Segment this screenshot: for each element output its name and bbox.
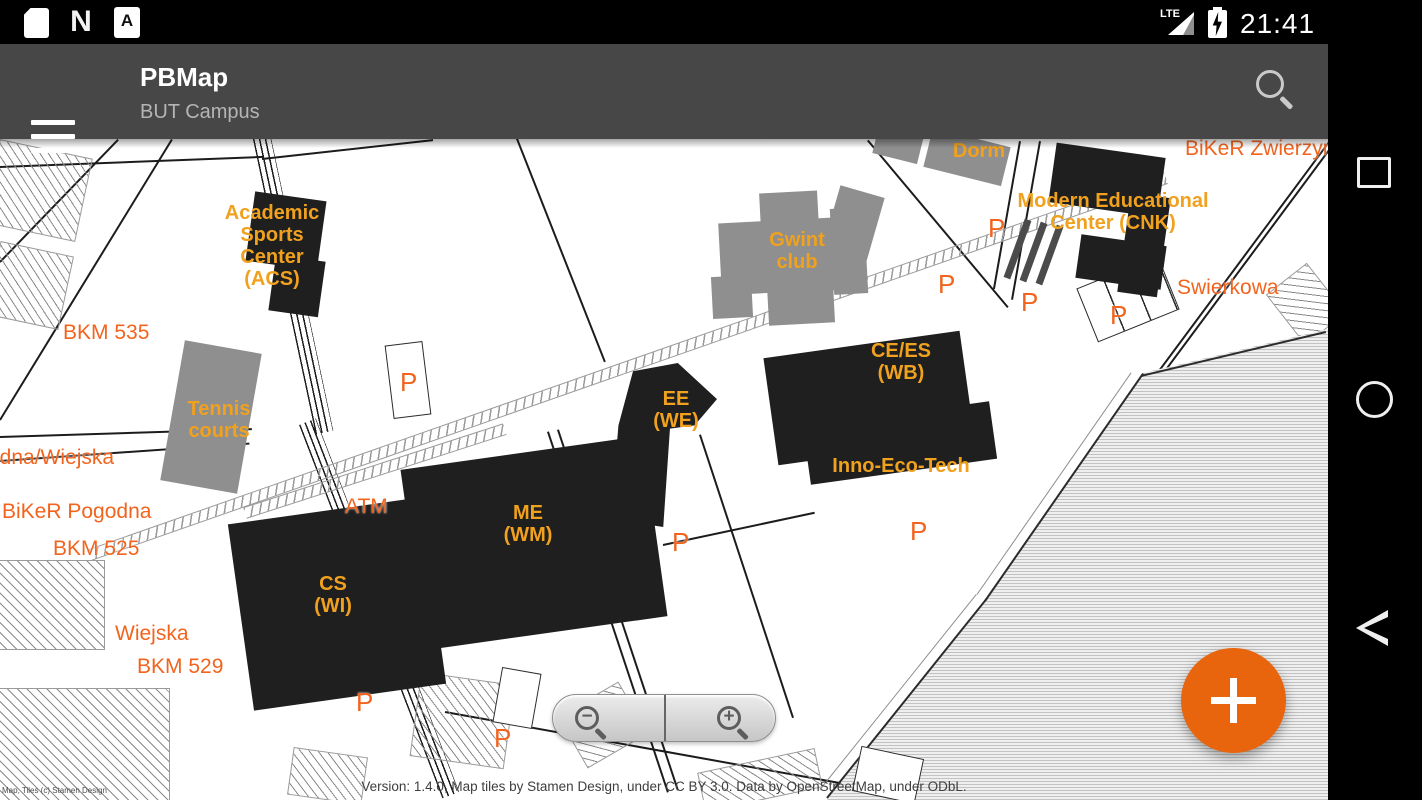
building-outline [492, 667, 541, 729]
zoom-in-button[interactable]: + [664, 704, 775, 734]
building-gwint-club[interactable] [767, 282, 835, 325]
parking-marker: P [1110, 300, 1127, 331]
building-gwint-club[interactable] [711, 275, 753, 319]
parking-marker: P [672, 527, 689, 558]
zoom-control[interactable]: − + [552, 694, 776, 742]
building-gwint-club[interactable] [759, 191, 819, 230]
label-bkm525: BKM 525 [53, 537, 139, 561]
road [516, 139, 606, 362]
label-swierkowa: Swierkowa [1177, 276, 1279, 300]
zoom-out-icon: − [575, 706, 599, 730]
label-acs[interactable]: Academic Sports Center (ACS) [212, 202, 332, 290]
hatched-area [0, 139, 93, 242]
label-biker-pogodna: BiKeR Pogodna [2, 500, 151, 524]
label-inno-eco-tech[interactable]: Inno-Eco-Tech [811, 455, 991, 477]
sd-card-icon [24, 8, 49, 38]
label-cs[interactable]: CS (WI) [283, 573, 383, 617]
toolbar-shadow [0, 139, 1328, 148]
label-me[interactable]: ME (WM) [478, 502, 578, 546]
label-atm: ATM [345, 495, 388, 519]
label-ee[interactable]: EE (WE) [636, 388, 716, 432]
menu-icon[interactable] [31, 120, 75, 153]
corner-attribution: Map, Tiles (c) Stamen Design [2, 786, 107, 795]
hatched-area [0, 560, 105, 650]
status-bar: N A LTE 21:41 [0, 0, 1422, 44]
road [699, 434, 794, 718]
map-canvas[interactable]: Academic Sports Center (ACS) Tennis cour… [0, 139, 1328, 800]
label-cnk[interactable]: Modern Educational Center (CNK) [1013, 190, 1213, 234]
back-triangle-icon[interactable] [1356, 610, 1388, 646]
zoom-out-button[interactable]: − [553, 704, 664, 734]
app-toolbar: PBMap BUT Campus [0, 44, 1328, 139]
label-pogodna-wiejska: odna/Wiejska [0, 446, 114, 470]
app-subtitle: BUT Campus [140, 101, 260, 124]
parking-marker: P [400, 367, 417, 398]
label-ce-es[interactable]: CE/ES (WB) [851, 340, 951, 384]
add-fab-button[interactable] [1181, 648, 1286, 753]
parking-marker: P [910, 516, 927, 547]
parking-marker: P [494, 723, 511, 754]
parking-marker: P [356, 687, 373, 718]
status-clock: 21:41 [1240, 8, 1315, 40]
label-bkm529: BKM 529 [137, 655, 223, 679]
plus-icon [1230, 678, 1237, 723]
search-icon[interactable] [1256, 70, 1284, 98]
zoom-in-icon: + [717, 706, 741, 730]
lte-label: LTE [1160, 8, 1180, 20]
android-n-icon: N [66, 6, 96, 38]
label-gwint-club[interactable]: Gwint club [747, 229, 847, 273]
label-wiejska: Wiejska [115, 622, 189, 646]
map-attribution: Version: 1.4.0, Map tiles by Stamen Desi… [0, 779, 1328, 794]
parking-marker: P [1021, 287, 1038, 318]
label-bkm535: BKM 535 [63, 321, 149, 345]
recents-square-icon[interactable] [1357, 157, 1391, 188]
parking-marker: P [988, 213, 1005, 244]
app-title: PBMap [140, 62, 228, 93]
parking-marker: P [938, 269, 955, 300]
file-a-icon: A [114, 7, 140, 38]
home-circle-icon[interactable] [1356, 381, 1393, 418]
battery-charging-icon [1208, 10, 1227, 38]
label-tennis-courts[interactable]: Tennis courts [169, 398, 269, 442]
android-nav-bar [1328, 0, 1422, 800]
